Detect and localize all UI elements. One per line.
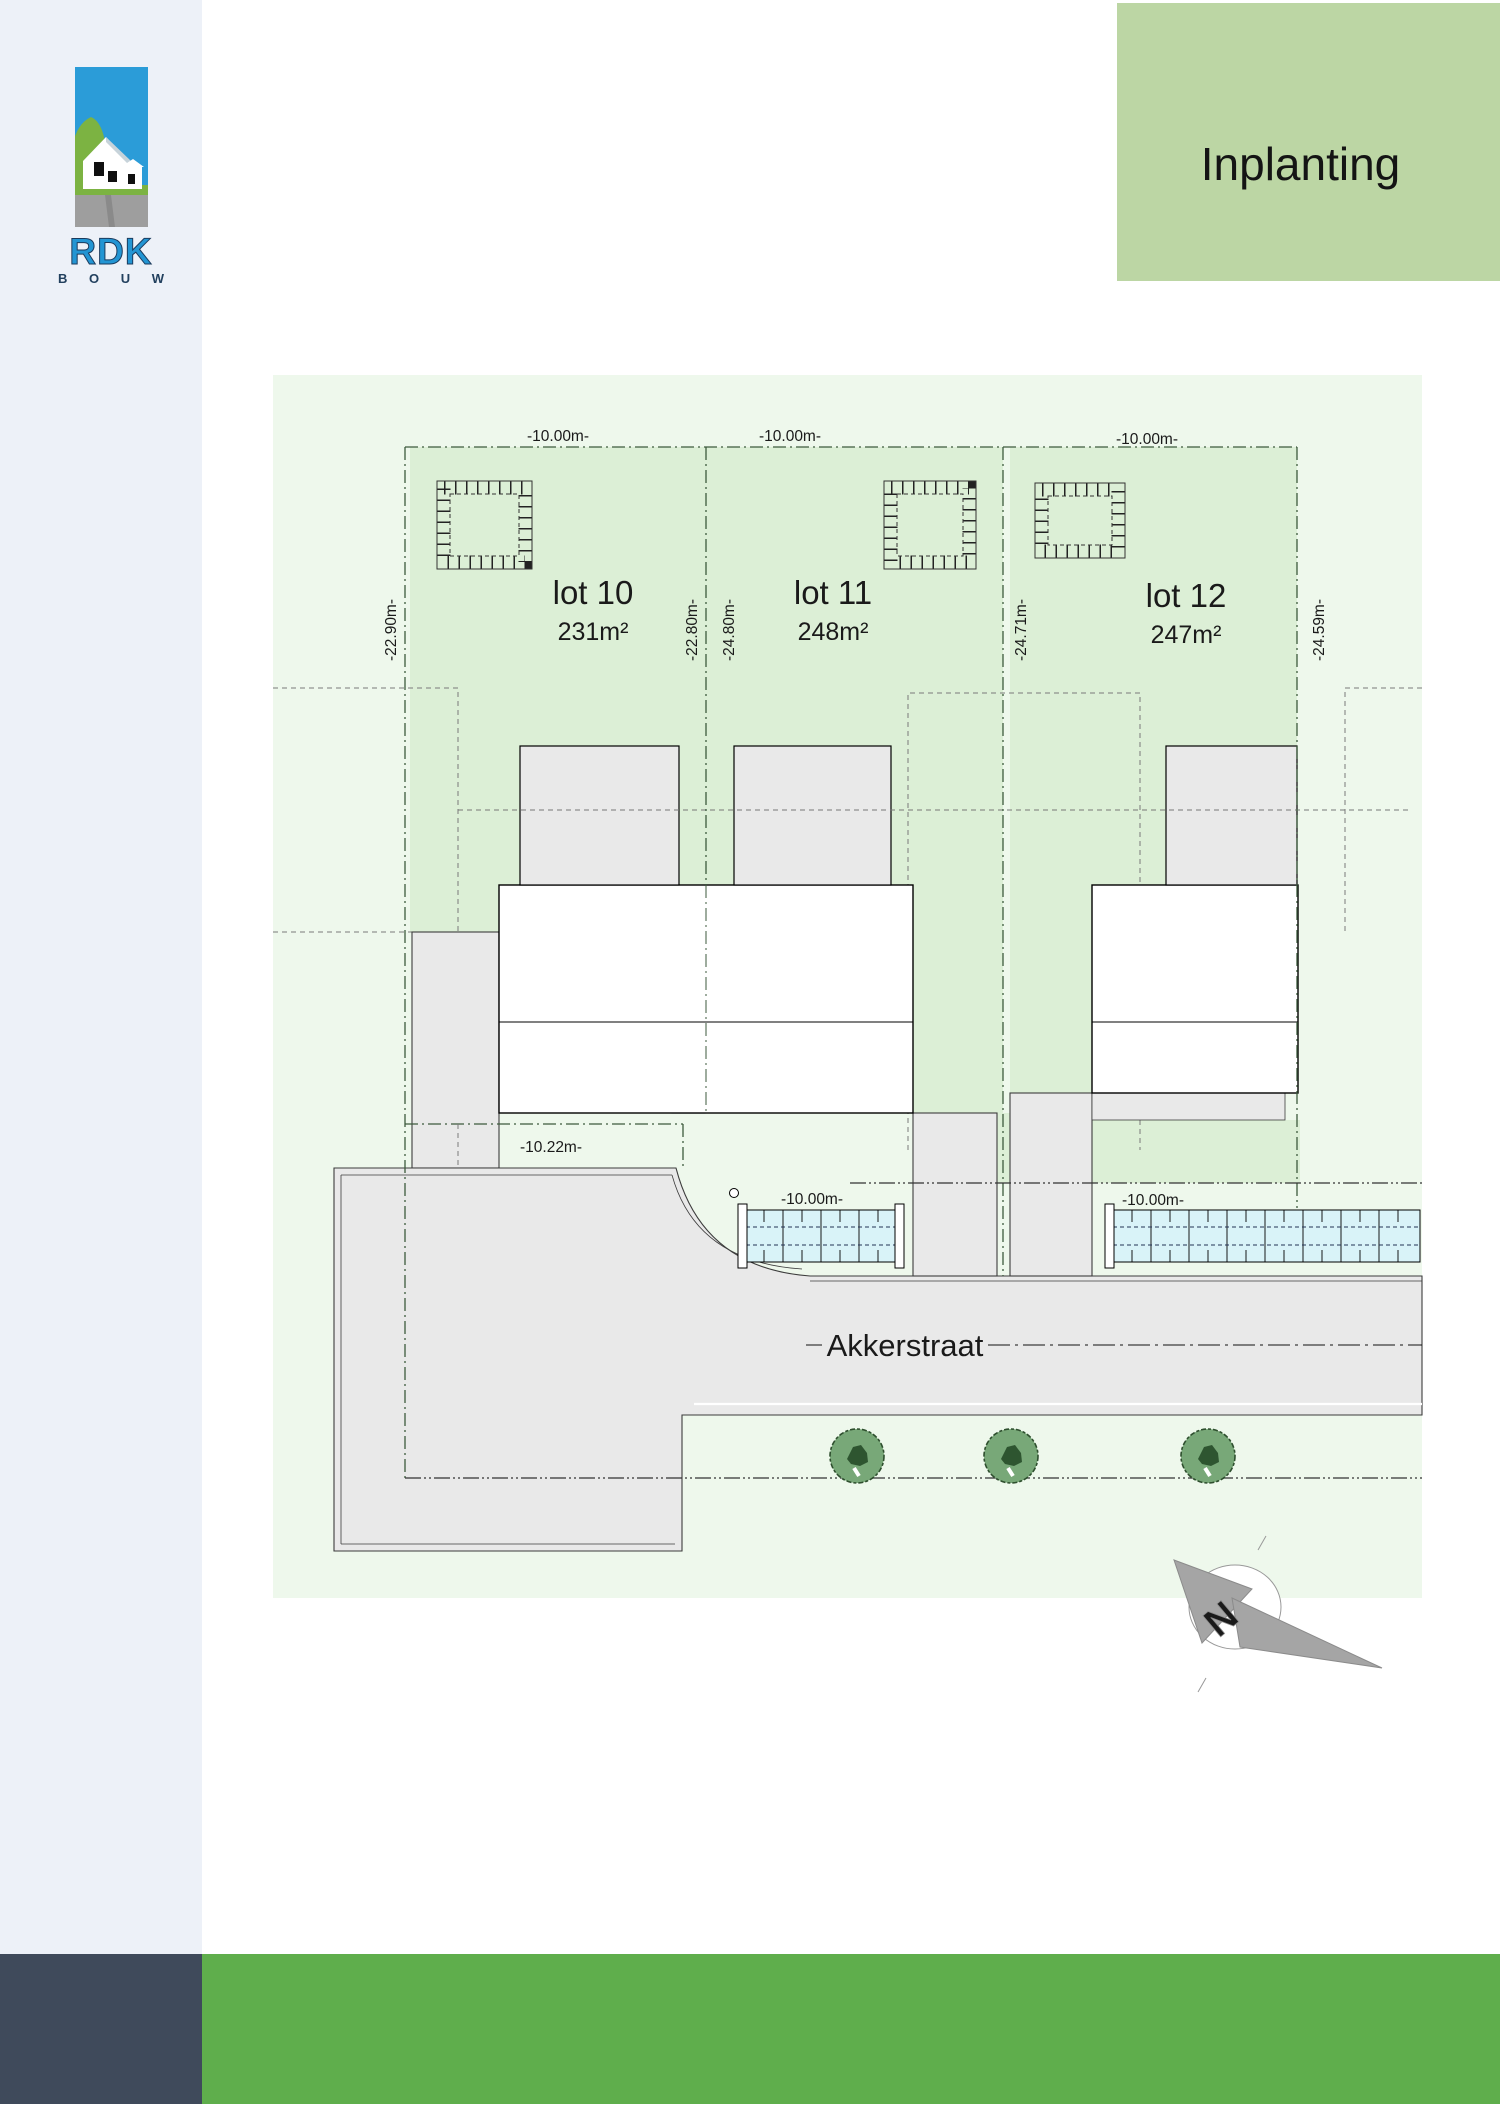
- lot10-name: lot 10: [553, 574, 634, 611]
- dim-depth-mid-right: -24.80m-: [721, 599, 738, 661]
- lot11-name: lot 11: [794, 574, 872, 611]
- dim-depth-far-right: -24.59m-: [1311, 599, 1328, 661]
- lot12-area: 247m²: [1151, 621, 1222, 649]
- footer-green-bar: [202, 1954, 1500, 2104]
- lot11-driveway: [913, 1113, 997, 1276]
- lot10-garage-wing: [412, 932, 499, 1168]
- lot12-driveway: [1010, 1093, 1092, 1276]
- dim-lot12-width: -10.00m-: [1116, 431, 1178, 448]
- dim-depth-left: -22.90m-: [383, 599, 400, 661]
- houses: [499, 885, 1298, 1113]
- house-lot-12: [1092, 885, 1298, 1093]
- dim-lot10-width: -10.00m-: [527, 428, 589, 445]
- hedge-lot11: [738, 1204, 904, 1268]
- dim-lot12-front: -10.00m-: [1122, 1192, 1184, 1209]
- lot10-area: 231m²: [558, 618, 629, 646]
- street-name: Akkerstraat: [827, 1328, 984, 1363]
- site-plan-drawing: N -10.00m- -10.00m- -10.00m- -22.90m- -2…: [0, 0, 1500, 2104]
- brochure-page: RDK B O U W Inplanting: [0, 0, 1500, 2104]
- lot12-terrace: [1092, 1093, 1285, 1120]
- survey-marker: [730, 1189, 739, 1198]
- dim-lot11-width: -10.00m-: [759, 428, 821, 445]
- dim-depth-mid-left: -22.80m-: [684, 599, 701, 661]
- footer-dark-bar: [0, 1954, 202, 2104]
- dim-depth-right-pair: -24.71m-: [1013, 599, 1030, 661]
- lot12-name: lot 12: [1146, 577, 1227, 614]
- hedge-lot12: [1105, 1204, 1420, 1268]
- dim-lot10-front: -10.22m-: [520, 1139, 582, 1156]
- dim-lot11-front: -10.00m-: [781, 1191, 843, 1208]
- lot11-area: 248m²: [798, 618, 869, 646]
